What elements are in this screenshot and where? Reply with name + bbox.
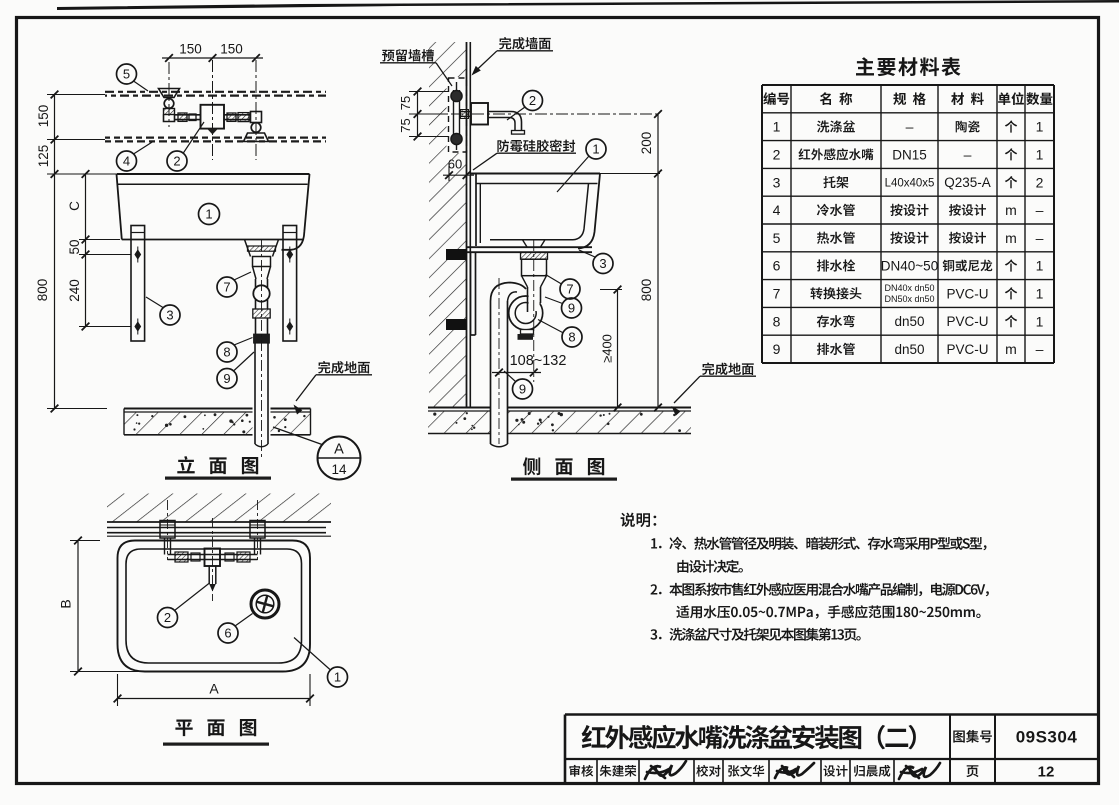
svg-text:1: 1 <box>334 670 341 685</box>
svg-text:4: 4 <box>123 154 130 169</box>
svg-text:1: 1 <box>1036 258 1044 274</box>
svg-text:PVC-U: PVC-U <box>946 314 988 329</box>
svg-text:200: 200 <box>639 132 654 155</box>
svg-text:DN40~50: DN40~50 <box>881 259 938 274</box>
svg-text:1: 1 <box>1036 313 1044 329</box>
svg-text:–: – <box>1036 341 1044 357</box>
svg-text:125: 125 <box>36 145 51 168</box>
svg-text:1: 1 <box>1036 147 1044 163</box>
svg-text:m: m <box>1005 202 1017 218</box>
svg-text:6: 6 <box>224 626 231 641</box>
svg-text:m: m <box>1005 230 1017 246</box>
svg-text:2: 2 <box>164 610 171 625</box>
svg-text:75: 75 <box>398 96 413 110</box>
svg-text:3: 3 <box>773 174 781 190</box>
svg-text:8: 8 <box>223 345 230 360</box>
svg-text:A: A <box>209 681 219 697</box>
svg-text:dn50: dn50 <box>894 314 924 329</box>
svg-text:1: 1 <box>1036 286 1044 302</box>
svg-text:1: 1 <box>205 207 212 222</box>
svg-text:1: 1 <box>773 119 781 135</box>
svg-text:108~132: 108~132 <box>510 353 567 369</box>
svg-text:B: B <box>58 599 74 608</box>
svg-text:L40x40x5: L40x40x5 <box>885 177 935 189</box>
svg-text:3: 3 <box>599 256 606 271</box>
svg-text:9: 9 <box>223 371 230 386</box>
svg-text:C: C <box>67 201 82 211</box>
svg-text:4: 4 <box>773 202 781 218</box>
svg-text:DN40x dn50: DN40x dn50 <box>884 283 934 293</box>
svg-text:6: 6 <box>773 258 781 274</box>
svg-text:–: – <box>964 147 972 163</box>
svg-text:800: 800 <box>35 279 50 302</box>
svg-text:dn50: dn50 <box>894 342 924 357</box>
svg-text:≥400: ≥400 <box>600 334 615 363</box>
svg-text:5: 5 <box>123 67 130 82</box>
svg-text:–: – <box>1036 202 1044 218</box>
svg-text:7: 7 <box>566 282 573 297</box>
svg-text:150: 150 <box>36 105 51 128</box>
svg-text:A: A <box>334 442 344 458</box>
svg-text:3: 3 <box>166 308 173 323</box>
svg-text:800: 800 <box>639 279 654 302</box>
svg-text:DN15: DN15 <box>892 147 927 162</box>
svg-text:09S304: 09S304 <box>1016 728 1078 747</box>
svg-text:12: 12 <box>1038 763 1055 780</box>
svg-text:5: 5 <box>773 230 781 246</box>
svg-text:Q235-A: Q235-A <box>944 175 991 190</box>
svg-text:2: 2 <box>529 93 536 108</box>
svg-text:14: 14 <box>331 462 347 477</box>
svg-text:240: 240 <box>67 279 82 302</box>
svg-text:7: 7 <box>223 280 230 295</box>
svg-text:1: 1 <box>592 142 599 157</box>
svg-text:9: 9 <box>519 382 526 397</box>
svg-text:50: 50 <box>67 239 82 254</box>
svg-text:m: m <box>1005 341 1017 357</box>
svg-text:2: 2 <box>773 147 781 163</box>
svg-text:60: 60 <box>448 157 462 172</box>
svg-text:75: 75 <box>398 118 413 132</box>
svg-text:1: 1 <box>1036 119 1044 135</box>
svg-text:2: 2 <box>173 154 180 169</box>
svg-text:150: 150 <box>179 41 202 56</box>
svg-text:2: 2 <box>1036 174 1044 190</box>
svg-text:150: 150 <box>220 41 243 56</box>
svg-text:7: 7 <box>773 286 781 302</box>
svg-text:DN50x dn50: DN50x dn50 <box>884 294 934 304</box>
svg-text:PVC-U: PVC-U <box>946 286 988 301</box>
svg-text:9: 9 <box>773 341 781 357</box>
svg-text:8: 8 <box>568 330 575 345</box>
svg-text:PVC-U: PVC-U <box>946 342 988 357</box>
svg-text:8: 8 <box>773 313 781 329</box>
svg-text:–: – <box>906 119 914 135</box>
svg-text:–: – <box>1036 230 1044 246</box>
svg-text:9: 9 <box>568 301 575 316</box>
